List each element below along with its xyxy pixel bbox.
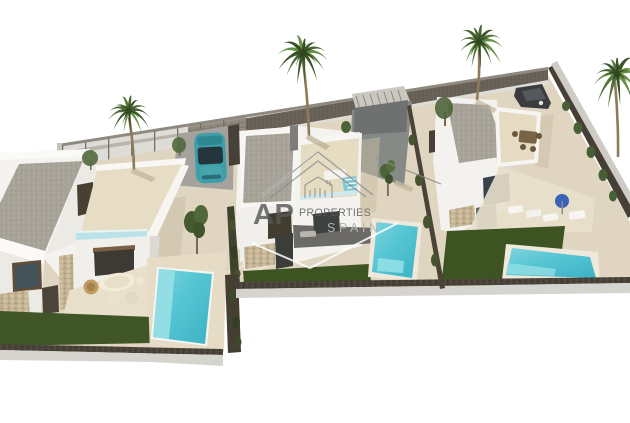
svg-text:PROPERTIES: PROPERTIES	[299, 207, 371, 219]
svg-text:AP: AP	[253, 199, 294, 231]
svg-text:SPAIN: SPAIN	[327, 221, 382, 235]
